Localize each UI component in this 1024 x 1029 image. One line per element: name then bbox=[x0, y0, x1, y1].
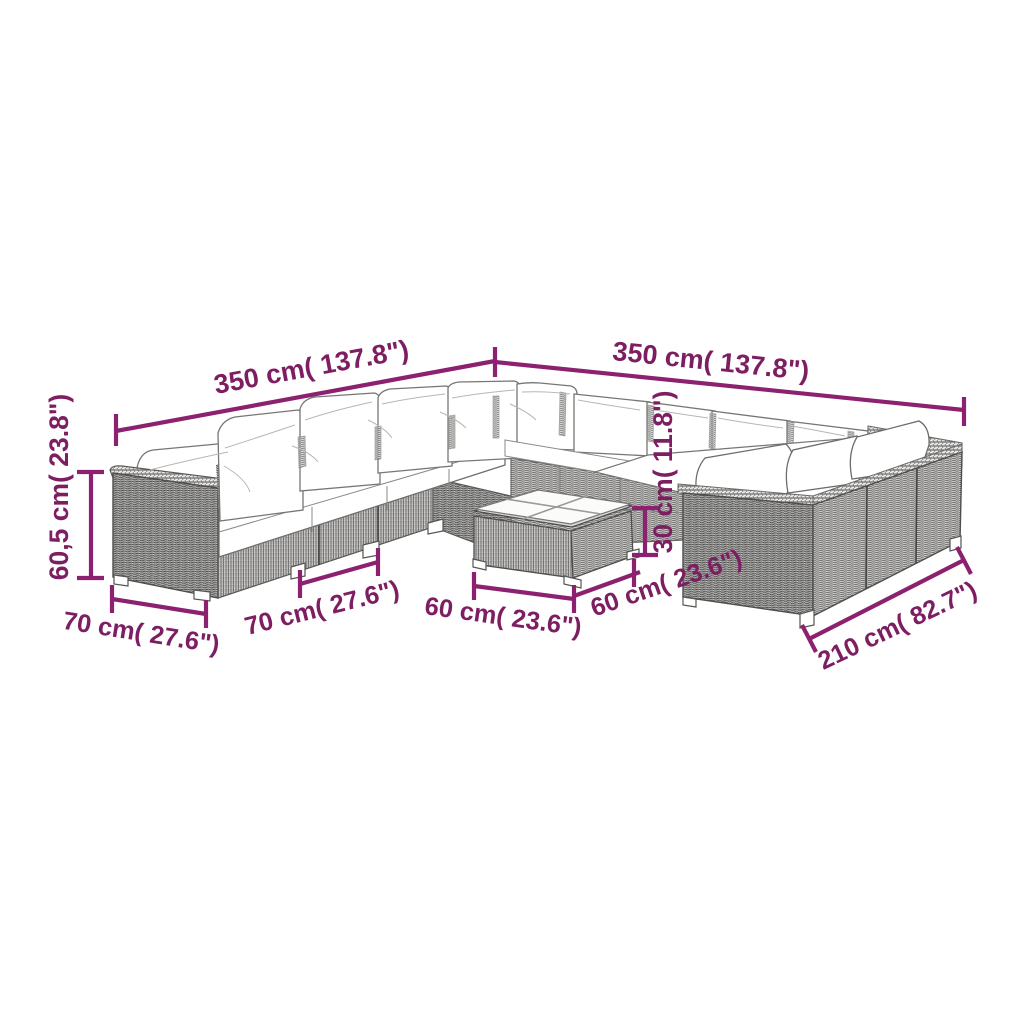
svg-text:60,5 cm( 23.8"): 60,5 cm( 23.8") bbox=[44, 394, 74, 580]
svg-text:30 cm( 11.8"): 30 cm( 11.8") bbox=[648, 391, 678, 554]
